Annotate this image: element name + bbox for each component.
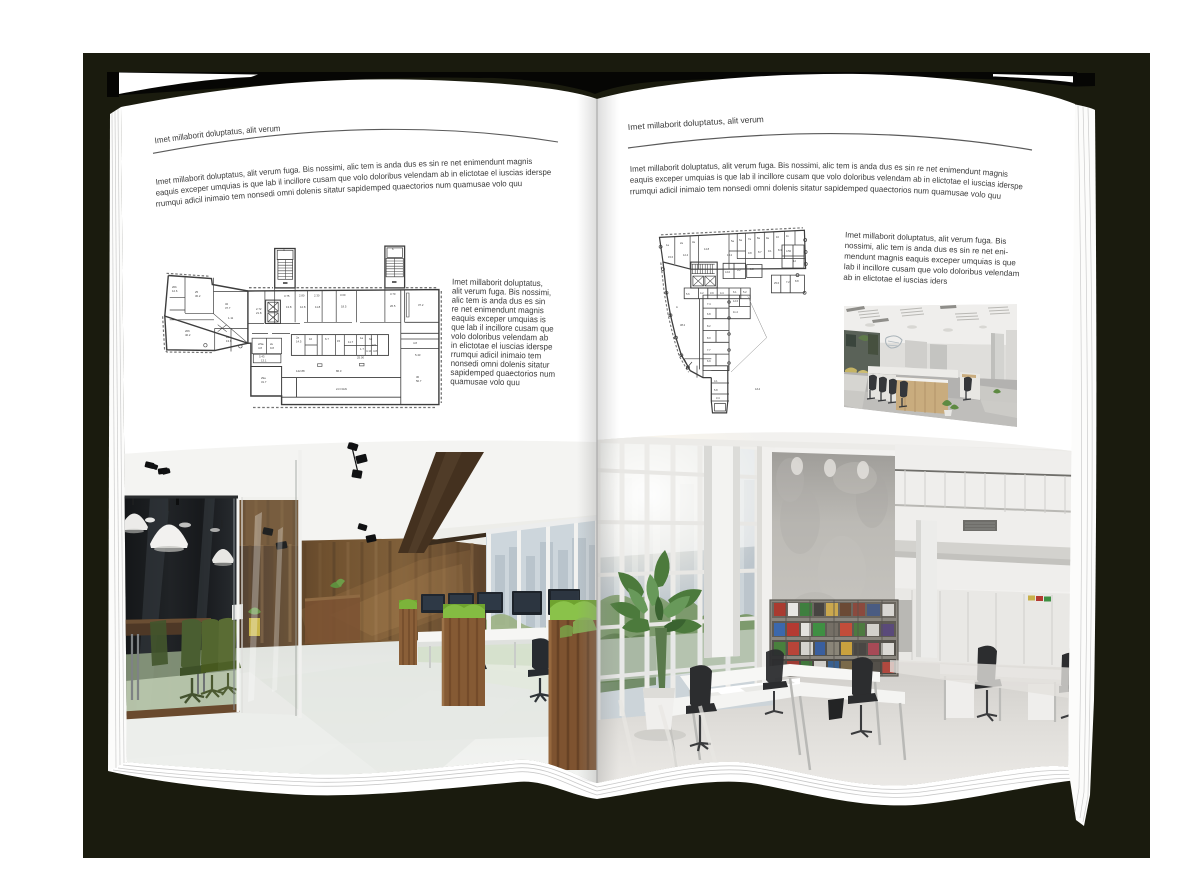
- svg-text:4.8: 4.8: [373, 349, 377, 353]
- svg-text:1.7: 1.7: [360, 347, 364, 351]
- svg-text:13.2: 13.2: [727, 253, 733, 257]
- svg-text:4.5: 4.5: [372, 343, 376, 347]
- svg-text:12.6: 12.6: [733, 299, 739, 303]
- svg-text:3.75: 3.75: [284, 294, 290, 298]
- svg-text:4.8: 4.8: [413, 341, 417, 345]
- svg-text:50.7: 50.7: [416, 379, 422, 383]
- svg-text:86.3: 86.3: [336, 369, 342, 373]
- svg-text:4.10: 4.10: [366, 349, 372, 353]
- svg-text:11.8: 11.8: [315, 305, 321, 309]
- svg-text:38.2: 38.2: [680, 323, 686, 327]
- svg-text:30.2: 30.2: [195, 294, 201, 298]
- svg-text:4.4: 4.4: [720, 291, 724, 295]
- svg-text:3.70: 3.70: [390, 292, 396, 296]
- svg-text:5.43: 5.43: [415, 353, 421, 357]
- svg-text:5.8: 5.8: [714, 388, 718, 392]
- svg-text:4.2: 4.2: [700, 291, 704, 295]
- svg-text:37.2: 37.2: [418, 303, 424, 307]
- svg-text:14.8: 14.8: [704, 247, 710, 251]
- svg-text:4.10: 4.10: [725, 270, 731, 274]
- svg-text:14.5: 14.5: [296, 340, 302, 344]
- svg-text:9.6: 9.6: [686, 365, 690, 369]
- svg-text:18.5: 18.5: [341, 305, 347, 309]
- svg-text:12.6: 12.6: [172, 289, 178, 293]
- svg-text:9.8: 9.8: [748, 251, 752, 255]
- svg-text:64: 64: [369, 337, 373, 341]
- svg-text:25.6: 25.6: [774, 281, 780, 285]
- svg-text:4.8: 4.8: [258, 346, 262, 350]
- svg-text:6.7: 6.7: [325, 337, 329, 341]
- svg-text:6.8: 6.8: [750, 267, 754, 271]
- svg-text:26.5: 26.5: [390, 304, 396, 308]
- svg-text:12.4: 12.4: [683, 253, 689, 257]
- svg-text:2-N 3AN: 2-N 3AN: [336, 387, 347, 391]
- svg-text:31.7: 31.7: [261, 380, 267, 384]
- svg-text:21.8: 21.8: [256, 311, 262, 315]
- svg-text:15: 15: [337, 339, 341, 343]
- svg-text:15.6: 15.6: [668, 255, 674, 259]
- svg-text:5.6: 5.6: [686, 292, 690, 296]
- svg-text:3.9: 3.9: [710, 291, 714, 295]
- svg-text:7.2: 7.2: [786, 280, 790, 284]
- svg-text:9.1: 9.1: [768, 249, 772, 253]
- svg-text:40.2: 40.2: [185, 333, 191, 337]
- svg-text:A: A: [676, 305, 678, 309]
- svg-text:6.1: 6.1: [733, 290, 737, 294]
- svg-text:1/14: 1/14: [755, 387, 761, 391]
- svg-text:8.4: 8.4: [778, 248, 782, 252]
- svg-text:37.7: 37.7: [225, 306, 231, 310]
- svg-text:11.7: 11.7: [348, 340, 354, 344]
- svg-text:1.11: 1.11: [228, 316, 234, 320]
- svg-text:6.9: 6.9: [707, 359, 711, 363]
- svg-text:4.50: 4.50: [786, 249, 792, 253]
- svg-text:8.0: 8.0: [707, 336, 711, 340]
- svg-text:A: A: [283, 248, 285, 252]
- svg-text:13.1: 13.1: [261, 359, 267, 363]
- svg-text:2.30: 2.30: [314, 294, 320, 298]
- svg-text:12.8: 12.8: [300, 305, 306, 309]
- svg-text:4.1: 4.1: [714, 379, 718, 383]
- svg-text:13.8: 13.8: [286, 305, 292, 309]
- svg-text:9.8: 9.8: [270, 346, 274, 350]
- svg-text:3.4: 3.4: [716, 396, 720, 400]
- svg-text:142.88: 142.88: [296, 369, 305, 373]
- svg-text:10: 10: [309, 337, 313, 341]
- svg-text:quamusae volo quu: quamusae volo quu: [450, 377, 520, 387]
- svg-text:8.7: 8.7: [758, 250, 762, 254]
- svg-text:8.8: 8.8: [795, 279, 799, 283]
- svg-text:7.4: 7.4: [707, 302, 711, 306]
- svg-text:5.2: 5.2: [743, 290, 747, 294]
- svg-text:13.6: 13.6: [226, 339, 232, 343]
- svg-text:2.80: 2.80: [299, 294, 305, 298]
- svg-text:6.8: 6.8: [707, 312, 711, 316]
- svg-text:3.00: 3.00: [340, 293, 346, 297]
- svg-text:11.4: 11.4: [733, 310, 738, 314]
- svg-text:3.2: 3.2: [737, 268, 741, 272]
- svg-text:25.00: 25.00: [357, 356, 364, 360]
- svg-text:7.7: 7.7: [707, 348, 711, 352]
- svg-text:8.2: 8.2: [707, 324, 711, 328]
- svg-text:1a: 1a: [360, 336, 364, 340]
